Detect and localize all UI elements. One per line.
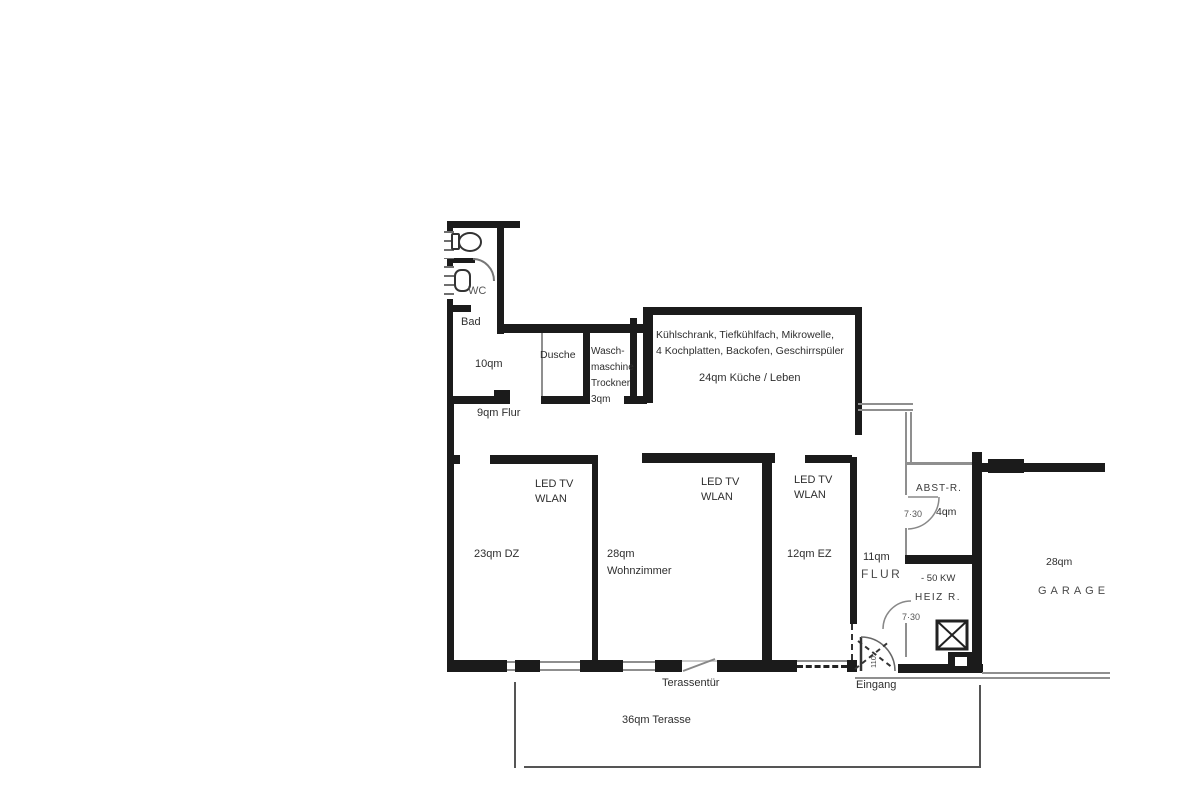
room-label-kitchen: 24qm Küche / Leben: [699, 371, 801, 386]
room-label-laundry: Wasch- maschine Trockner 3qm: [591, 344, 634, 408]
room-label-heizraum: HEIZ R.: [915, 590, 961, 605]
room-label-flur11: FLUR: [861, 567, 902, 582]
toilet-icon: [459, 233, 481, 251]
feature-label-wz-tv: LED TV WLAN: [701, 475, 739, 505]
room-label-bad: Bad: [461, 315, 481, 330]
door-width-heiz: 7·30: [902, 610, 920, 625]
feature-label-ez-tv: LED TV WLAN: [794, 473, 832, 503]
power-label-boiler: - 50 KW: [921, 571, 955, 586]
floor-plan: WC Bad 10qm Dusche Wasch- maschine Trock…: [0, 0, 1200, 800]
area-label-bad: 10qm: [475, 357, 503, 372]
label-entrance: Eingang: [856, 678, 896, 693]
label-terrace: 36qm Terasse: [622, 713, 691, 728]
room-label-wc: WC: [468, 284, 486, 299]
room-label-dz: 23qm DZ: [474, 547, 519, 562]
room-label-garage: GARAGE: [1038, 584, 1109, 599]
area-label-garage: 28qm: [1046, 555, 1072, 570]
label-terrace-door: Terassentür: [662, 676, 719, 691]
room-label-ez: 12qm EZ: [787, 547, 832, 562]
door-width-abst: 7·30: [904, 507, 922, 522]
room-label-dusche: Dusche: [540, 348, 576, 363]
area-label-abst: 4qm: [936, 505, 956, 520]
door-arc-wc: [473, 259, 494, 281]
meter-box-window: [955, 657, 967, 666]
room-label-flur9: 9qm Flur: [477, 406, 520, 421]
feature-label-dz-tv: LED TV WLAN: [535, 477, 573, 507]
room-label-abstellraum: ABST-R.: [916, 481, 962, 496]
door-width-entrance: 110: [866, 656, 881, 668]
kitchen-equipment-note: Kühlschrank, Tiefkühlfach, Mikrowelle, 4…: [656, 327, 844, 359]
area-label-flur11: 11qm: [863, 550, 890, 565]
toilet-tank-icon: [452, 234, 459, 249]
room-label-wohnzimmer: 28qm Wohnzimmer: [607, 546, 672, 580]
